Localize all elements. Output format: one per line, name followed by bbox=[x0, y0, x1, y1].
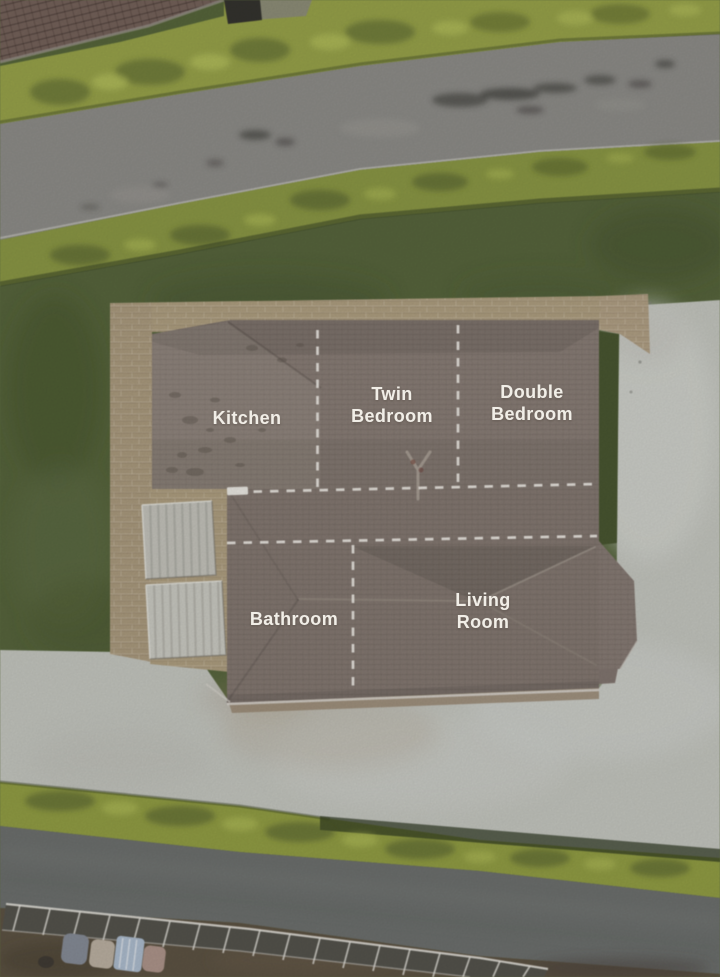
room-label-double-bedroom: Double Bedroom bbox=[471, 382, 593, 426]
grain-overlay bbox=[0, 0, 720, 977]
aerial-photo bbox=[0, 0, 720, 977]
room-label-twin-bedroom: Twin Bedroom bbox=[336, 384, 448, 428]
room-label-living-room: Living Room bbox=[447, 590, 519, 634]
aerial-view: Kitchen Twin Bedroom Double Bedroom Bath… bbox=[0, 0, 720, 977]
room-label-kitchen: Kitchen bbox=[213, 408, 282, 430]
room-label-bathroom: Bathroom bbox=[250, 609, 338, 631]
